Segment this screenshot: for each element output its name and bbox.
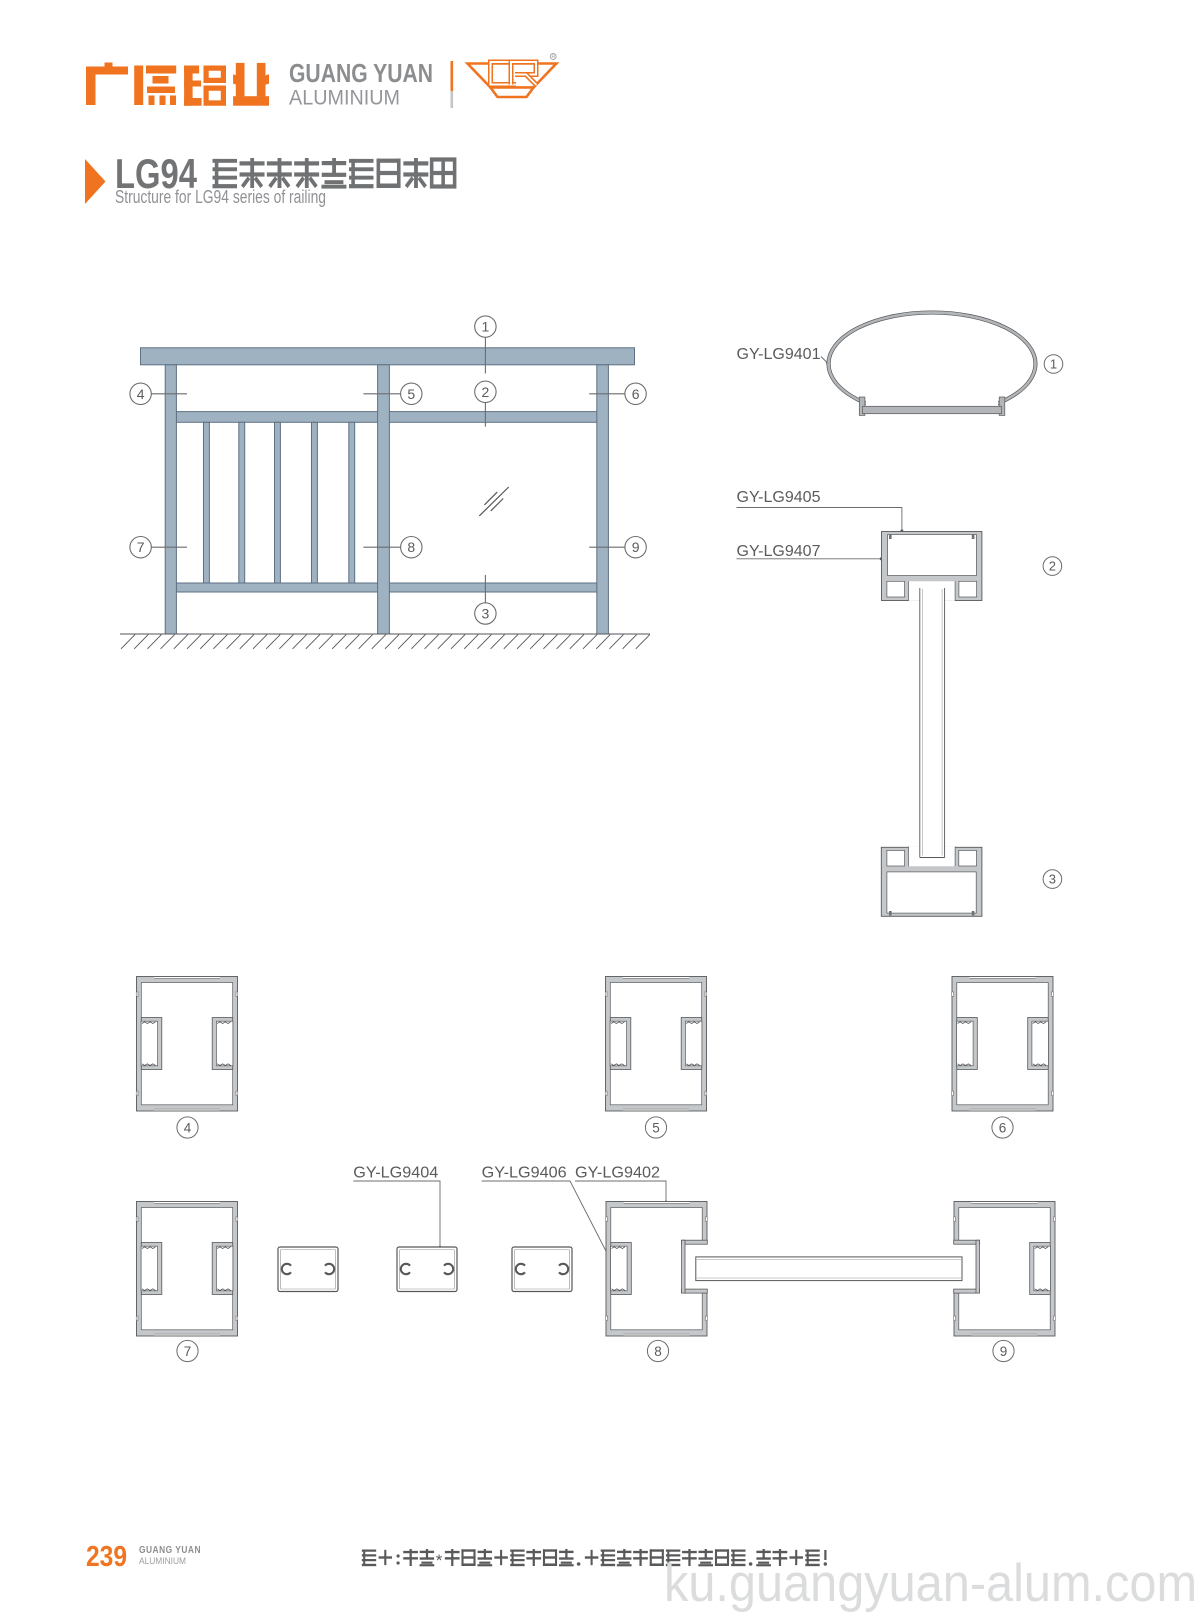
svg-text:9: 9 [632, 539, 640, 555]
svg-text:4: 4 [184, 1120, 192, 1135]
svg-text:6: 6 [632, 386, 640, 402]
svg-text:3: 3 [482, 606, 490, 622]
svg-text:6: 6 [999, 1120, 1007, 1135]
svg-text:9: 9 [1000, 1344, 1008, 1359]
svg-text:2: 2 [1049, 559, 1056, 574]
svg-text:*: * [436, 1551, 443, 1570]
svg-text:GY-LG9405: GY-LG9405 [737, 489, 821, 506]
svg-text:ku.guangyuan-alum.com: ku.guangyuan-alum.com [664, 1554, 1197, 1613]
svg-text:3: 3 [1049, 872, 1056, 887]
svg-text:Structure for LG94 series of r: Structure for LG94 series of railing [115, 187, 326, 207]
svg-text:1: 1 [482, 319, 490, 335]
svg-text:ALUMINIUM: ALUMINIUM [289, 87, 400, 110]
svg-text:GUANG YUAN: GUANG YUAN [289, 58, 433, 88]
svg-text:GY-LG9401: GY-LG9401 [737, 346, 821, 363]
svg-text:5: 5 [407, 386, 415, 402]
svg-text:GY-LG9407: GY-LG9407 [737, 543, 821, 560]
svg-text:4: 4 [137, 386, 145, 402]
svg-text:R: R [551, 55, 555, 61]
svg-text:GY-LG9402: GY-LG9402 [575, 1165, 660, 1182]
svg-text:7: 7 [137, 539, 145, 555]
svg-text:5: 5 [652, 1120, 660, 1135]
svg-text:GY-LG9404: GY-LG9404 [353, 1165, 438, 1182]
svg-text:8: 8 [654, 1344, 662, 1359]
svg-text:8: 8 [407, 539, 415, 555]
svg-text:1: 1 [1050, 357, 1057, 372]
svg-text:239: 239 [86, 1541, 127, 1573]
svg-text:GUANG YUAN: GUANG YUAN [139, 1545, 201, 1556]
svg-text:2: 2 [482, 384, 490, 400]
svg-text:7: 7 [184, 1344, 192, 1359]
svg-text:GY-LG9406: GY-LG9406 [482, 1165, 567, 1182]
svg-text:ALUMINIUM: ALUMINIUM [139, 1556, 186, 1566]
